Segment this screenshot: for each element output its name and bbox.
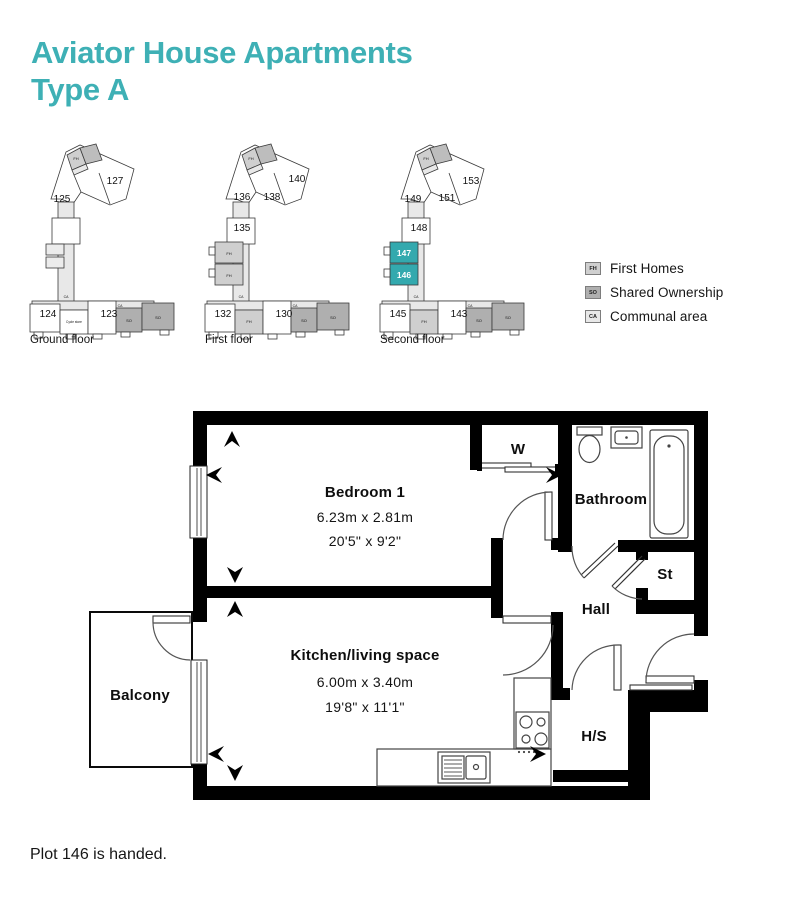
wardrobe-sliding-door [477,461,560,474]
balcony-label: Balcony [110,687,170,704]
kitchen-sink [438,752,490,783]
plan-label: 143 [451,309,468,320]
plan-label: 148 [411,223,428,234]
plan-label: SO [126,318,132,323]
bedroom-metric: 6.23m x 2.81m [317,509,414,525]
plan-label: 124 [40,309,57,320]
plan-label: 123 [101,309,118,320]
shared-ownership-label: Shared Ownership [610,285,723,300]
plan-unit [52,218,80,244]
plan-label: 145 [390,309,407,320]
plan-unit [384,247,390,255]
site-plan-ground-floor: 125127FHCACA124Cycle store123SOSO [22,142,182,342]
plan-label: Cycle store [66,320,82,324]
plan-unit [510,330,519,335]
plan-label: 151 [439,193,456,204]
bathroom-label: Bathroom [575,491,647,508]
bedroom-door [503,492,552,540]
plan-label: FH [423,156,428,161]
plan-label: CA [468,304,474,308]
caption-second-floor: Second floor [380,334,445,346]
site-plan-first-floor: 136138140FH135FHFHCACA132FH130SOSO [197,142,357,342]
plan-label: SO [301,318,307,323]
page-title: Aviator House Apartments Type A [31,34,413,108]
basin [611,427,642,448]
plan-unit [46,257,64,268]
plan-unit [384,269,390,277]
plan-label: FH [226,273,231,278]
plan-unit [209,247,215,255]
plan-label: CA [293,304,299,308]
plan-unit [93,334,102,339]
plan-label: CA [414,295,420,299]
bathtub [650,430,688,538]
bathroom-door [572,543,618,578]
communal-area-label: Communal area [610,309,707,324]
kitchen-metric: 6.00m x 3.40m [317,674,414,690]
page-title-line1: Aviator House Apartments [31,34,413,71]
balcony-glazing [191,660,207,764]
handed-note: Plot 146 is handed. [30,846,167,864]
hs-label: H/S [581,728,607,745]
hall-label: Hall [582,601,610,618]
plan-label: 146 [397,270,411,280]
legend-row-first-homes: FH First Homes [585,261,723,276]
plan-unit [209,269,215,277]
plan-label: 125 [54,194,71,205]
shared-ownership-swatch: SO [585,286,601,299]
plan-label: FH [421,319,426,324]
kitchen-imperial: 19'8" x 11'1" [325,699,405,715]
caption-ground-floor: Ground floor [30,334,94,346]
plan-unit [121,332,130,337]
legend: FH First Homes SO Shared Ownership CA Co… [585,261,723,333]
plan-unit [46,244,64,255]
plan-label: SO [476,318,482,323]
bedroom-window [190,466,207,538]
hob [516,712,549,753]
plan-label: FH [73,156,78,161]
caption-first-floor: First floor [205,334,253,346]
wardrobe-label: W [511,441,526,458]
toilet [577,427,602,463]
legend-row-communal-area: CA Communal area [585,309,723,324]
kitchen-door [503,616,553,675]
entrance-door [630,634,694,690]
communal-area-swatch: CA [585,310,601,323]
first-homes-label: First Homes [610,261,684,276]
plan-unit [471,332,480,337]
plan-label: 138 [264,192,281,203]
plan-label: FH [226,251,231,256]
plan-label: 149 [405,194,422,205]
plan-label: 136 [234,192,251,203]
plan-label: FH [248,156,253,161]
site-plan-second-floor: 149151153FH148147146CACA145FH143SOSO [372,142,532,342]
plan-unit [160,330,169,335]
plan-label: 140 [289,174,306,185]
plan-label: CA [118,304,124,308]
plan-label: SO [505,315,511,320]
kitchen-label: Kitchen/living space [290,647,439,664]
plan-unit [296,332,305,337]
first-homes-swatch: FH [585,262,601,275]
walls [193,411,708,800]
plan-label: 135 [234,223,251,234]
store-label: St [657,566,672,583]
legend-row-shared-ownership: SO Shared Ownership [585,285,723,300]
plan-label: CA [239,295,245,299]
plan-label: 147 [397,248,411,258]
plan-label: SO [330,315,336,320]
apartment-floor-plan: Bedroom 1 6.23m x 2.81m 20'5" x 9'2" Kit… [85,398,710,818]
plan-label: 132 [215,309,232,320]
plan-label: 127 [107,176,124,187]
page-title-line2: Type A [31,71,413,108]
plan-unit [335,330,344,335]
hs-door [572,645,621,690]
bedroom-label: Bedroom 1 [325,484,405,501]
bedroom-imperial: 20'5" x 9'2" [329,533,402,549]
plan-label: 153 [463,176,480,187]
plan-unit [268,334,277,339]
plan-label: 130 [276,309,293,320]
plan-label: FH [246,319,251,324]
plan-label: CA [64,295,70,299]
plan-label: SO [155,315,161,320]
